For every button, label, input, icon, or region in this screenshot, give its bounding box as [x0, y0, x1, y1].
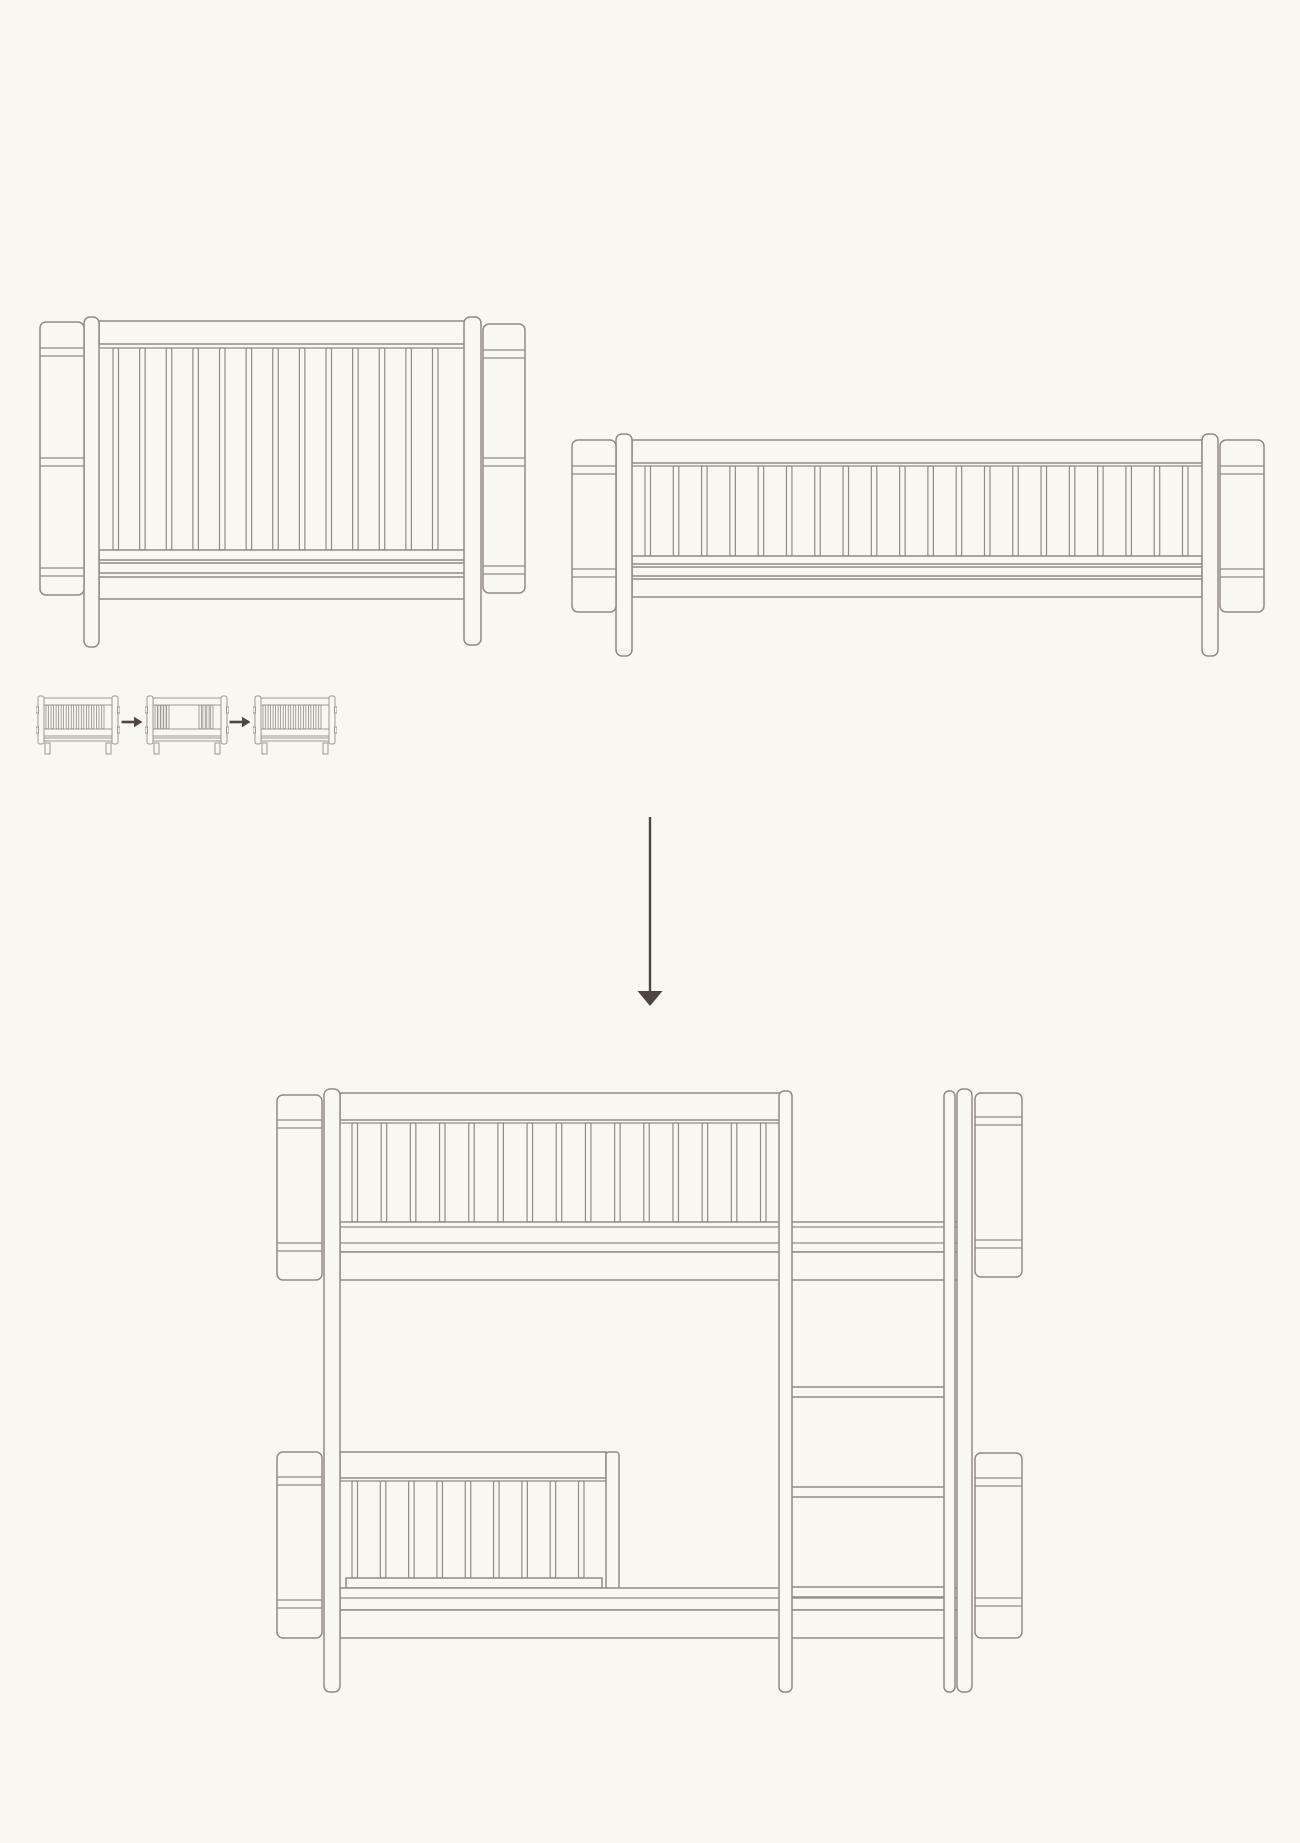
cot-base-rail-2 [99, 563, 465, 573]
down-arrow-icon [618, 810, 682, 1010]
bunk-lower-right-panel [975, 1453, 1022, 1638]
cot-bed-icon [36, 691, 120, 755]
cot-right-end-panel [483, 324, 525, 593]
bunk-upper-base-beam [340, 1252, 958, 1280]
icon-slats [46, 705, 104, 729]
icon-slats [263, 705, 321, 729]
cot-left-end-panel [40, 322, 84, 595]
junior-cot-icon [253, 691, 337, 755]
ladder-right-stile [944, 1091, 955, 1692]
bunk-upper-slats [352, 1123, 766, 1222]
junior-left-end-panel [572, 440, 616, 612]
bunk-left-post [324, 1089, 340, 1692]
bunk-lower-base-beam [340, 1610, 958, 1638]
icon-slats-left [155, 705, 169, 729]
icon-slats-right [199, 705, 213, 729]
ladder-rung-1 [790, 1387, 946, 1397]
bunk-lower-slats [352, 1481, 584, 1578]
junior-slats [645, 466, 1188, 556]
illustration-page [0, 0, 1300, 1843]
bunk-lower-left-panel [277, 1452, 322, 1638]
bunk-upper-right-panel [975, 1093, 1022, 1277]
junior-left-post [616, 434, 632, 656]
junior-bed-figure [565, 425, 1285, 665]
right-arrow-icon [121, 714, 143, 730]
junior-base-rail-2 [632, 567, 1202, 576]
junior-right-end-panel [1220, 440, 1264, 612]
junior-right-post [1202, 434, 1218, 656]
cot-bed-figure [30, 310, 535, 655]
cot-base-beam [99, 577, 465, 599]
junior-base-beam [632, 579, 1202, 597]
bunk-lower-rail-bottom [346, 1578, 602, 1588]
cot-right-post [464, 317, 481, 645]
right-arrow-icon [229, 714, 251, 730]
bunk-upper-top-rail [340, 1093, 780, 1120]
cot-base-rail-1 [99, 550, 465, 560]
cot-top-rail [99, 321, 465, 344]
ladder-left-stile [779, 1091, 792, 1692]
cot-slats [113, 348, 438, 550]
ladder-rung-3 [790, 1587, 946, 1597]
bunk-bed-figure [270, 1085, 1030, 1700]
bunk-lower-rail-end-cap [606, 1452, 619, 1589]
bunk-right-post [957, 1089, 972, 1692]
ladder-rung-2 [790, 1487, 946, 1497]
cot-bed-open-side-icon [145, 691, 229, 755]
bunk-lower-top-rail [340, 1452, 606, 1478]
junior-top-rail [632, 440, 1202, 463]
cot-left-post [84, 317, 99, 647]
junior-base-rail-1 [632, 556, 1202, 564]
bunk-upper-left-panel [277, 1095, 322, 1280]
